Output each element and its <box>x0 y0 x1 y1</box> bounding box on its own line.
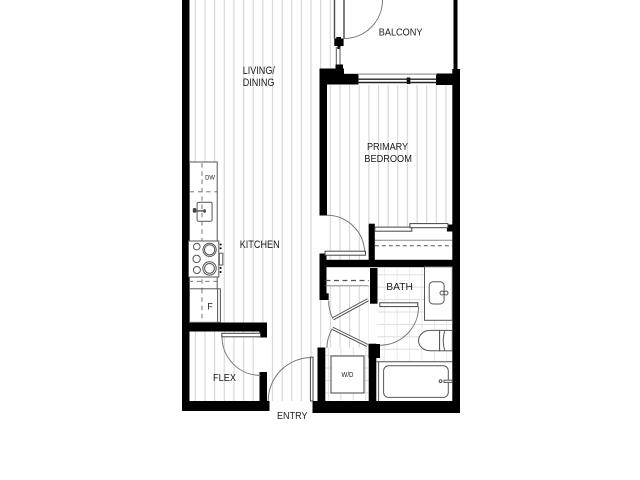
svg-text:F: F <box>207 301 213 311</box>
svg-text:BALCONY: BALCONY <box>379 27 423 38</box>
svg-text:DW: DW <box>205 175 215 182</box>
svg-text:DINING: DINING <box>243 77 275 89</box>
svg-text:BATH: BATH <box>386 282 413 293</box>
svg-text:BEDROOM: BEDROOM <box>364 154 412 165</box>
svg-text:KITCHEN: KITCHEN <box>240 239 280 251</box>
svg-text:ENTRY: ENTRY <box>277 411 308 422</box>
svg-text:W/D: W/D <box>342 372 354 379</box>
svg-text:PRIMARY: PRIMARY <box>367 142 408 153</box>
svg-text:FLEX: FLEX <box>213 373 236 384</box>
svg-text:LIVING/: LIVING/ <box>243 65 275 77</box>
